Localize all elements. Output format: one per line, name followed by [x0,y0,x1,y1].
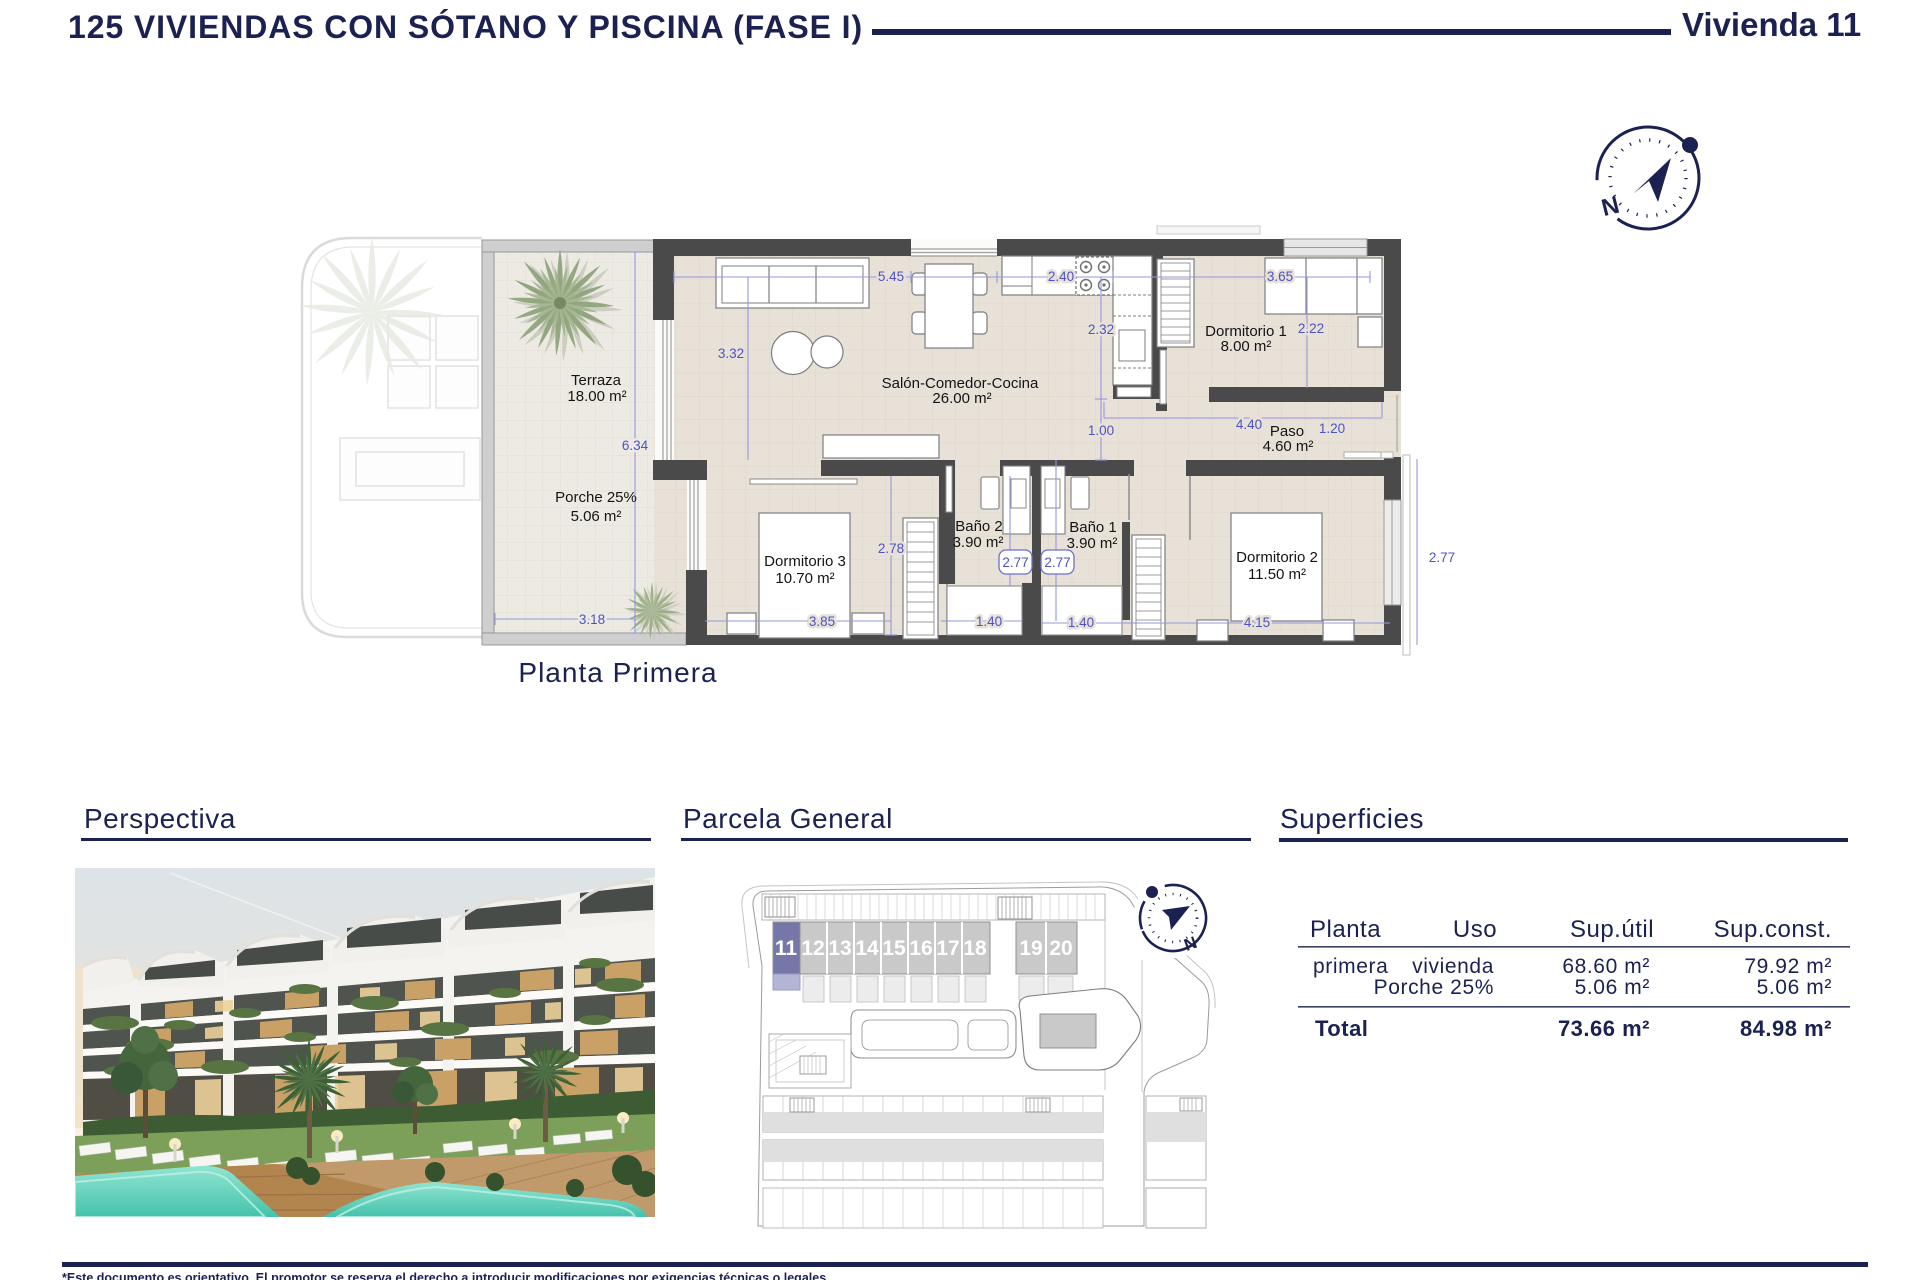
svg-text:26.00 m²: 26.00 m² [932,390,991,407]
svg-text:17: 17 [936,937,959,960]
svg-text:primera: primera [1313,955,1388,978]
svg-text:5.06 m²: 5.06 m² [571,508,622,525]
svg-text:3.90 m²: 3.90 m² [953,534,1004,551]
svg-text:68.60 m²: 68.60 m² [1562,955,1650,978]
svg-text:Terraza: Terraza [571,372,622,389]
svg-text:3.18: 3.18 [579,612,605,627]
svg-text:4.40: 4.40 [1236,417,1262,432]
svg-text:5.45: 5.45 [878,269,904,284]
svg-text:5.06 m²: 5.06 m² [1575,976,1650,999]
svg-text:8.00 m²: 8.00 m² [1221,338,1272,355]
svg-text:3.32: 3.32 [718,346,744,361]
svg-text:Superficies: Superficies [1280,803,1424,834]
svg-text:Sup.útil: Sup.útil [1570,916,1654,943]
svg-text:2.77: 2.77 [1044,555,1070,570]
svg-text:125 VIVIENDAS CON SÓTANO Y PIS: 125 VIVIENDAS CON SÓTANO Y PISCINA (FASE… [68,9,863,45]
svg-text:11.50 m²: 11.50 m² [1248,566,1306,583]
svg-text:Uso: Uso [1453,916,1497,943]
svg-text:1.20: 1.20 [1319,421,1345,436]
svg-text:Porche 25%: Porche 25% [1374,976,1494,999]
svg-text:Sup.const.: Sup.const. [1714,916,1832,943]
svg-text:4.15: 4.15 [1244,615,1270,630]
svg-text:*Este documento es orientativo: *Este documento es orientativo. El promo… [62,1271,826,1280]
svg-text:Planta Primera: Planta Primera [518,657,717,688]
svg-text:Dormitorio 3: Dormitorio 3 [764,553,846,570]
svg-text:1.40: 1.40 [1068,615,1094,630]
svg-text:15: 15 [882,937,906,960]
svg-text:2.78: 2.78 [878,541,904,556]
svg-text:Total: Total [1315,1016,1368,1041]
svg-text:Baño 1: Baño 1 [1069,519,1117,536]
svg-text:3.85: 3.85 [809,614,835,629]
svg-text:1.00: 1.00 [1088,423,1114,438]
svg-text:2.32: 2.32 [1088,322,1114,337]
svg-text:5.06 m²: 5.06 m² [1757,976,1832,999]
svg-text:73.66 m²: 73.66 m² [1558,1016,1650,1041]
svg-text:Vivienda 11: Vivienda 11 [1682,6,1861,43]
svg-text:Porche 25%: Porche 25% [555,489,637,506]
svg-text:Dormitorio 2: Dormitorio 2 [1236,549,1318,566]
svg-text:3.90 m²: 3.90 m² [1067,535,1118,552]
svg-text:18: 18 [963,937,987,960]
svg-text:11: 11 [775,937,798,960]
svg-text:2.77: 2.77 [1429,550,1455,565]
svg-text:vivienda: vivienda [1412,955,1494,978]
svg-text:4.60 m²: 4.60 m² [1263,438,1314,455]
svg-text:Perspectiva: Perspectiva [84,803,236,834]
svg-text:6.34: 6.34 [622,438,649,453]
svg-text:16: 16 [909,937,932,960]
svg-text:13: 13 [828,937,851,960]
svg-text:1.40: 1.40 [976,614,1002,629]
svg-text:12: 12 [801,937,824,960]
svg-text:Planta: Planta [1310,916,1381,943]
svg-text:19: 19 [1019,937,1042,960]
svg-text:79.92 m²: 79.92 m² [1744,955,1832,978]
svg-text:18.00 m²: 18.00 m² [567,388,626,405]
svg-text:2.22: 2.22 [1298,321,1324,336]
svg-text:14: 14 [855,937,879,960]
svg-text:84.98 m²: 84.98 m² [1740,1016,1832,1041]
svg-text:2.77: 2.77 [1002,555,1028,570]
svg-text:3.65: 3.65 [1267,269,1293,284]
svg-text:Baño 2: Baño 2 [955,518,1003,535]
svg-text:10.70 m²: 10.70 m² [775,570,834,587]
svg-text:2.40: 2.40 [1048,269,1074,284]
svg-text:20: 20 [1049,937,1072,960]
svg-text:Parcela General: Parcela General [683,803,893,834]
